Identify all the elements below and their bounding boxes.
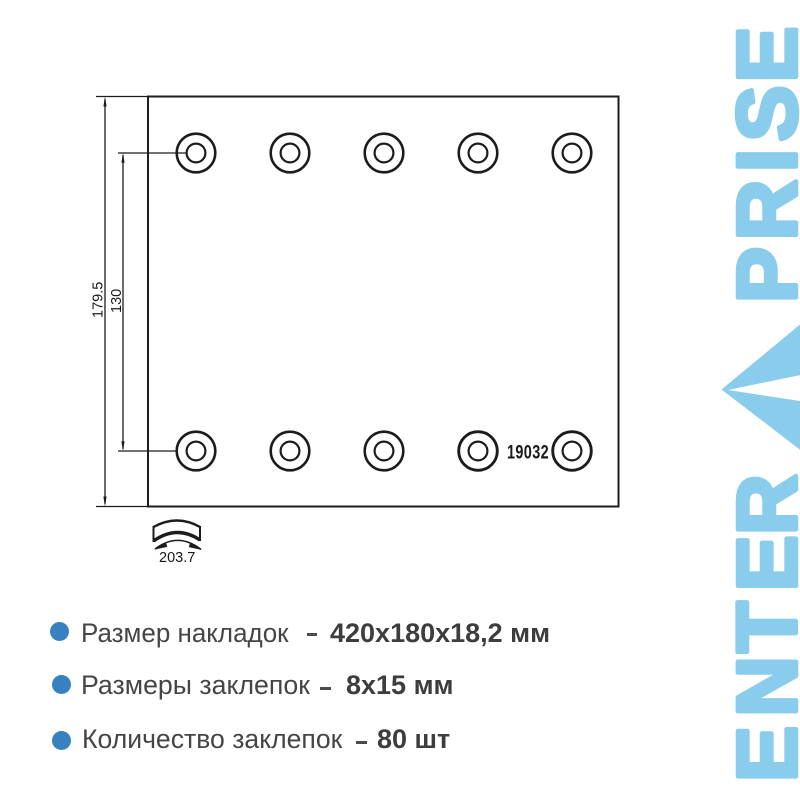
svg-text:203.7: 203.7 <box>159 550 195 566</box>
svg-text:179.5: 179.5 <box>91 282 107 318</box>
svg-text:19032: 19032 <box>507 442 549 463</box>
svg-text:130: 130 <box>109 289 125 313</box>
svg-text:PRISE: PRISE <box>720 26 800 303</box>
svg-text:ENTER: ENTER <box>720 474 800 782</box>
